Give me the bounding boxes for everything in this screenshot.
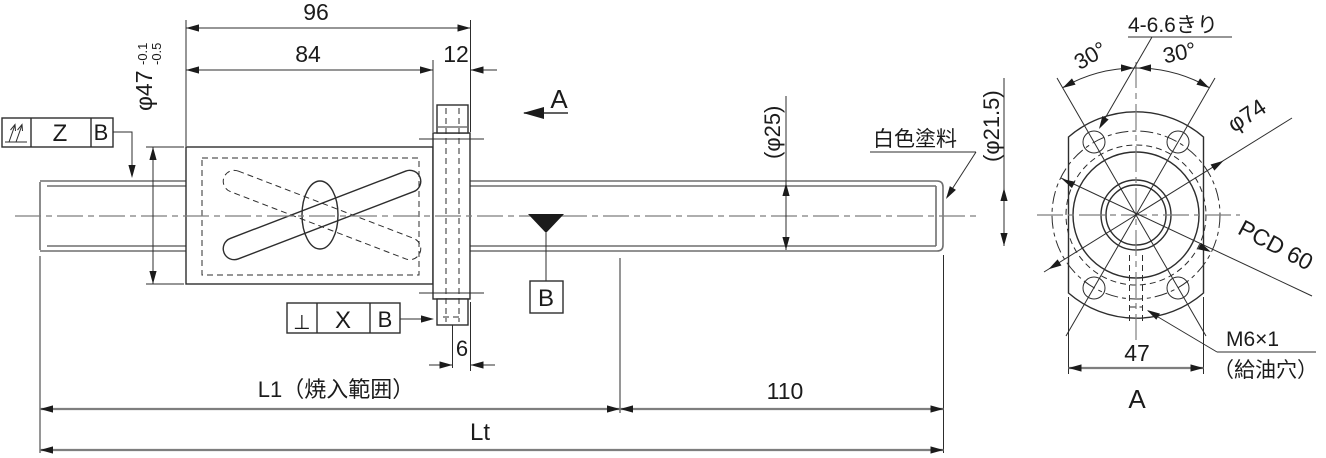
ball-screw-drawing: Z B ⊥ X B φ47 -0.1 -0.5 96 — [0, 0, 1326, 458]
nut-od-tol-upper: -0.1 — [135, 43, 150, 65]
dim-Lt-text: Lt — [470, 419, 490, 446]
paint-note: 白色塗料 — [870, 128, 976, 201]
section-arrow-a-label: A — [550, 84, 568, 114]
dimension-Lt: Lt — [40, 419, 944, 454]
perp-datum-ref: B — [378, 307, 393, 332]
dim-12-text: 12 — [443, 41, 469, 67]
ball-nut — [186, 105, 484, 325]
pcd-text: PCD 60 — [1234, 215, 1317, 276]
end-view-a: 30° 30° 4-6.6きり φ74 — [1037, 14, 1318, 414]
runout-tolerance-frame: Z B — [2, 118, 136, 178]
dimension-nut-od-47: φ47 -0.1 -0.5 — [131, 43, 184, 284]
bolt-holes-note-text: 4-6.6きり — [1128, 14, 1218, 37]
perpendicularity-tolerance-frame: ⊥ X B — [287, 303, 434, 334]
dim-96-text: 96 — [303, 0, 329, 25]
oil-note-text: （給油穴） — [1213, 359, 1318, 382]
flange-od-text: φ74 — [1223, 93, 1271, 137]
datum-target-triangle — [528, 214, 564, 233]
dim-110-text: 110 — [767, 378, 804, 404]
dimension-96: 96 — [186, 0, 471, 146]
dimension-screw-od-25: (φ25) — [760, 96, 790, 250]
angle-left-text: 30° — [1070, 36, 1111, 74]
screw-od-text: (φ25) — [760, 106, 785, 159]
view-a-label: A — [1128, 384, 1146, 414]
paint-note-text: 白色塗料 — [873, 128, 957, 151]
datum-target-b-label: B — [538, 285, 554, 312]
oil-thread-text: M6×1 — [1226, 328, 1279, 351]
dimension-110: 110 — [620, 255, 944, 453]
across-flats-text: 47 — [1124, 340, 1150, 366]
angle-right-text: 30° — [1161, 37, 1199, 68]
dimension-84: 84 — [186, 41, 433, 74]
screw-root-text: (φ21.5) — [979, 90, 1004, 162]
dim-L1-text: L1（焼入範囲） — [258, 377, 414, 402]
dimension-angle-30-left: 30° — [1061, 36, 1136, 91]
perpendicularity-icon: ⊥ — [293, 312, 310, 334]
drawing-canvas: Z B ⊥ X B φ47 -0.1 -0.5 96 — [0, 0, 1326, 458]
runout-datum-letter: Z — [53, 120, 68, 147]
runout-datum-ref: B — [94, 120, 109, 145]
perp-datum-letter: X — [335, 307, 351, 334]
nut-od-value: φ47 — [131, 71, 157, 112]
dim-84-text: 84 — [295, 41, 321, 67]
datum-target-b: B — [528, 214, 564, 313]
dimension-screw-root-215: (φ21.5) — [979, 78, 1008, 246]
nut-od-tol-lower: -0.5 — [149, 43, 164, 65]
dim-6-text: 6 — [456, 336, 468, 361]
section-arrow-a: A — [523, 84, 568, 119]
